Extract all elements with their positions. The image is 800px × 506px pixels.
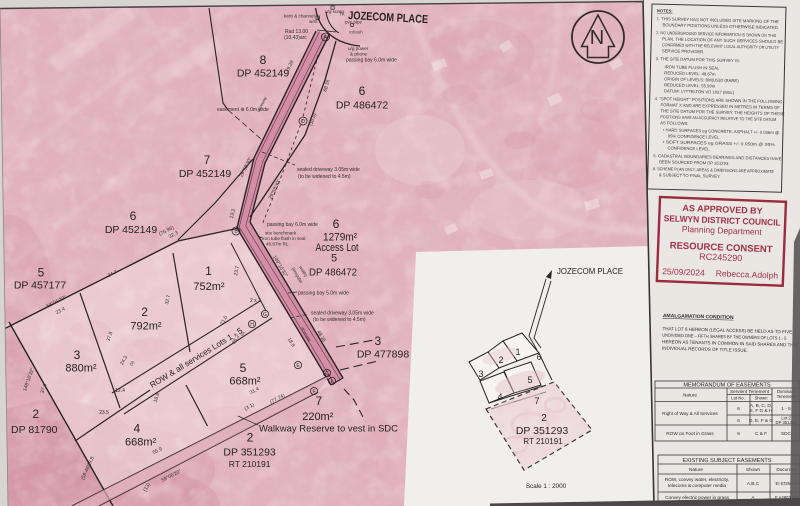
svg-text:Lot No.: Lot No. — [731, 396, 745, 401]
svg-text:12.4: 12.4 — [115, 388, 125, 394]
svg-text:u/g power: u/g power — [348, 46, 369, 51]
svg-text:DP 486472: DP 486472 — [336, 100, 389, 112]
svg-text:iron tube flush in seal: iron tube flush in seal — [262, 236, 305, 241]
svg-text:& phone: & phone — [350, 52, 368, 57]
svg-text:ROW on Foot in Grass: ROW on Foot in Grass — [666, 431, 714, 436]
svg-text:H: H — [250, 322, 254, 328]
svg-text:SDC: SDC — [781, 431, 792, 436]
svg-text:DP 452149: DP 452149 — [179, 168, 232, 180]
svg-text:ROW, convey water, electricity: ROW, convey water, electricity, — [665, 477, 729, 482]
svg-text:DP 81790: DP 81790 — [11, 424, 58, 436]
svg-text:5: 5 — [38, 266, 45, 280]
svg-text:EXISTING SUBJECT EASEMENTS: EXISTING SUBJECT EASEMENTS — [682, 458, 771, 464]
svg-text:TK: TK — [339, 12, 346, 17]
svg-text:6: 6 — [737, 431, 740, 436]
svg-text:pvc pipe: pvc pipe — [345, 20, 363, 25]
svg-text:kerb & channel: kerb & channel — [284, 14, 315, 19]
svg-text:6: 6 — [537, 353, 542, 362]
svg-text:5: 5 — [331, 253, 337, 265]
svg-text:DP 452149: DP 452149 — [237, 68, 290, 80]
svg-text:8: 8 — [260, 53, 267, 67]
svg-text:Walkway Reserve to vest in SDC: Walkway Reserve to vest in SDC — [259, 424, 398, 435]
svg-text:23.5: 23.5 — [99, 410, 109, 416]
svg-text:3: 3 — [74, 348, 81, 362]
svg-text:1: 1 — [515, 347, 520, 357]
svg-text:2: 2 — [32, 407, 39, 421]
svg-text:sealed driveway 3.05m wide: sealed driveway 3.05m wide — [311, 311, 374, 317]
svg-text:sealed driveway 3.05m wide: sealed driveway 3.05m wide — [297, 167, 360, 173]
svg-text:7: 7 — [315, 394, 322, 408]
svg-text:passing bay 6.0m wide: passing bay 6.0m wide — [346, 58, 397, 64]
svg-text:D: D — [301, 119, 305, 125]
svg-text:DP 351293: DP 351293 — [223, 447, 276, 459]
svg-text:7: 7 — [534, 396, 539, 406]
svg-text:25/09/2024: 25/09/2024 — [662, 266, 705, 278]
svg-text:NOTES:: NOTES: — [657, 8, 673, 13]
svg-text:668m²: 668m² — [125, 437, 157, 449]
svg-text:telecoms & computer media: telecoms & computer media — [668, 483, 726, 488]
svg-text:Convey electric power in grass: Convey electric power in grass — [665, 495, 729, 500]
svg-text:DP 351293: DP 351293 — [516, 425, 569, 437]
svg-text:DP 477898: DP 477898 — [357, 349, 410, 361]
svg-text:1 - 5: 1 - 5 — [781, 406, 791, 411]
svg-text:5: 5 — [527, 375, 532, 385]
svg-text:A,B,C: A,B,C — [747, 481, 760, 486]
svg-text:2: 2 — [247, 431, 254, 445]
svg-text:2 x 2: 2 x 2 — [250, 298, 261, 304]
svg-text:3: 3 — [374, 334, 381, 348]
svg-text:1: 1 — [205, 264, 212, 278]
svg-text:Scale 1 : 2000: Scale 1 : 2000 — [526, 483, 567, 490]
svg-text:6: 6 — [737, 418, 740, 423]
svg-text:(10.43)arc: (10.43)arc — [284, 35, 307, 41]
svg-text:6: 6 — [737, 406, 740, 411]
svg-text:CONFIDENCE LEVEL.: CONFIDENCE LEVEL. — [667, 145, 710, 151]
svg-text:C & F: C & F — [755, 431, 767, 436]
svg-text:2: 2 — [498, 355, 503, 365]
svg-text:DP 452149: DP 452149 — [105, 224, 158, 236]
svg-text:RT 210191: RT 210191 — [523, 437, 563, 446]
svg-text:752m²: 752m² — [193, 281, 225, 293]
svg-text:JOZECOM PLACE: JOZECOM PLACE — [557, 266, 623, 276]
svg-text:880m²: 880m² — [65, 363, 97, 375]
svg-text:DP 457177: DP 457177 — [14, 280, 67, 292]
svg-text:RC245290: RC245290 — [699, 252, 742, 264]
svg-text:site benchmark: site benchmark — [265, 231, 297, 236]
svg-text:Shown: Shown — [755, 396, 768, 401]
svg-text:668m²: 668m² — [229, 376, 261, 388]
svg-text:48.67m RL: 48.67m RL — [266, 242, 289, 247]
svg-text:3: 3 — [478, 369, 483, 379]
svg-text:2: 2 — [141, 305, 148, 319]
svg-text:6: 6 — [130, 209, 137, 223]
svg-text:passing bay 6.0m wide: passing bay 6.0m wide — [267, 222, 318, 228]
svg-text:Right of Way & All Services: Right of Way & All Services — [662, 411, 718, 416]
svg-text:220m²: 220m² — [302, 411, 334, 423]
svg-text:E, F G & H: E, F G & H — [750, 408, 773, 413]
svg-text:w/m: w/m — [309, 19, 318, 24]
svg-text:RT 210191: RT 210191 — [229, 459, 271, 469]
svg-text:G: G — [263, 312, 267, 318]
svg-text:6: 6 — [333, 217, 340, 231]
svg-text:6: 6 — [359, 84, 366, 98]
svg-text:passing bay 5.0m wide: passing bay 5.0m wide — [298, 291, 349, 297]
svg-text:4: 4 — [497, 392, 502, 402]
svg-text:D, E, F & G: D, E, F & G — [749, 418, 773, 423]
svg-text:Nature: Nature — [683, 393, 697, 398]
svg-text:5: 5 — [240, 361, 247, 375]
svg-text:AS FOLLOWS:: AS FOLLOWS: — [660, 120, 689, 126]
svg-text:Nature: Nature — [689, 467, 703, 472]
svg-text:(to be widened to 4.5m): (to be widened to 4.5m) — [298, 174, 351, 180]
svg-text:SERVICE PROVIDER.: SERVICE PROVIDER. — [662, 48, 705, 54]
svg-text:L: L — [331, 379, 334, 385]
svg-text:2: 2 — [541, 413, 547, 424]
svg-text:Servient Tenement: Servient Tenement — [730, 389, 770, 394]
svg-text:DP 486472: DP 486472 — [309, 267, 357, 279]
svg-text:Shown: Shown — [746, 467, 761, 472]
svg-text:C: C — [325, 371, 329, 377]
svg-text:N: N — [590, 27, 604, 49]
svg-text:792m²: 792m² — [130, 321, 162, 333]
svg-text:7: 7 — [204, 153, 211, 167]
svg-text:MEMORANDUM OF EASEMENTS: MEMORANDUM OF EASEMENTS — [683, 383, 771, 389]
svg-text:tobash: tobash — [349, 30, 363, 35]
svg-text:4: 4 — [133, 422, 140, 436]
svg-text:(to be widened to 4.5m): (to be widened to 4.5m) — [313, 317, 366, 323]
